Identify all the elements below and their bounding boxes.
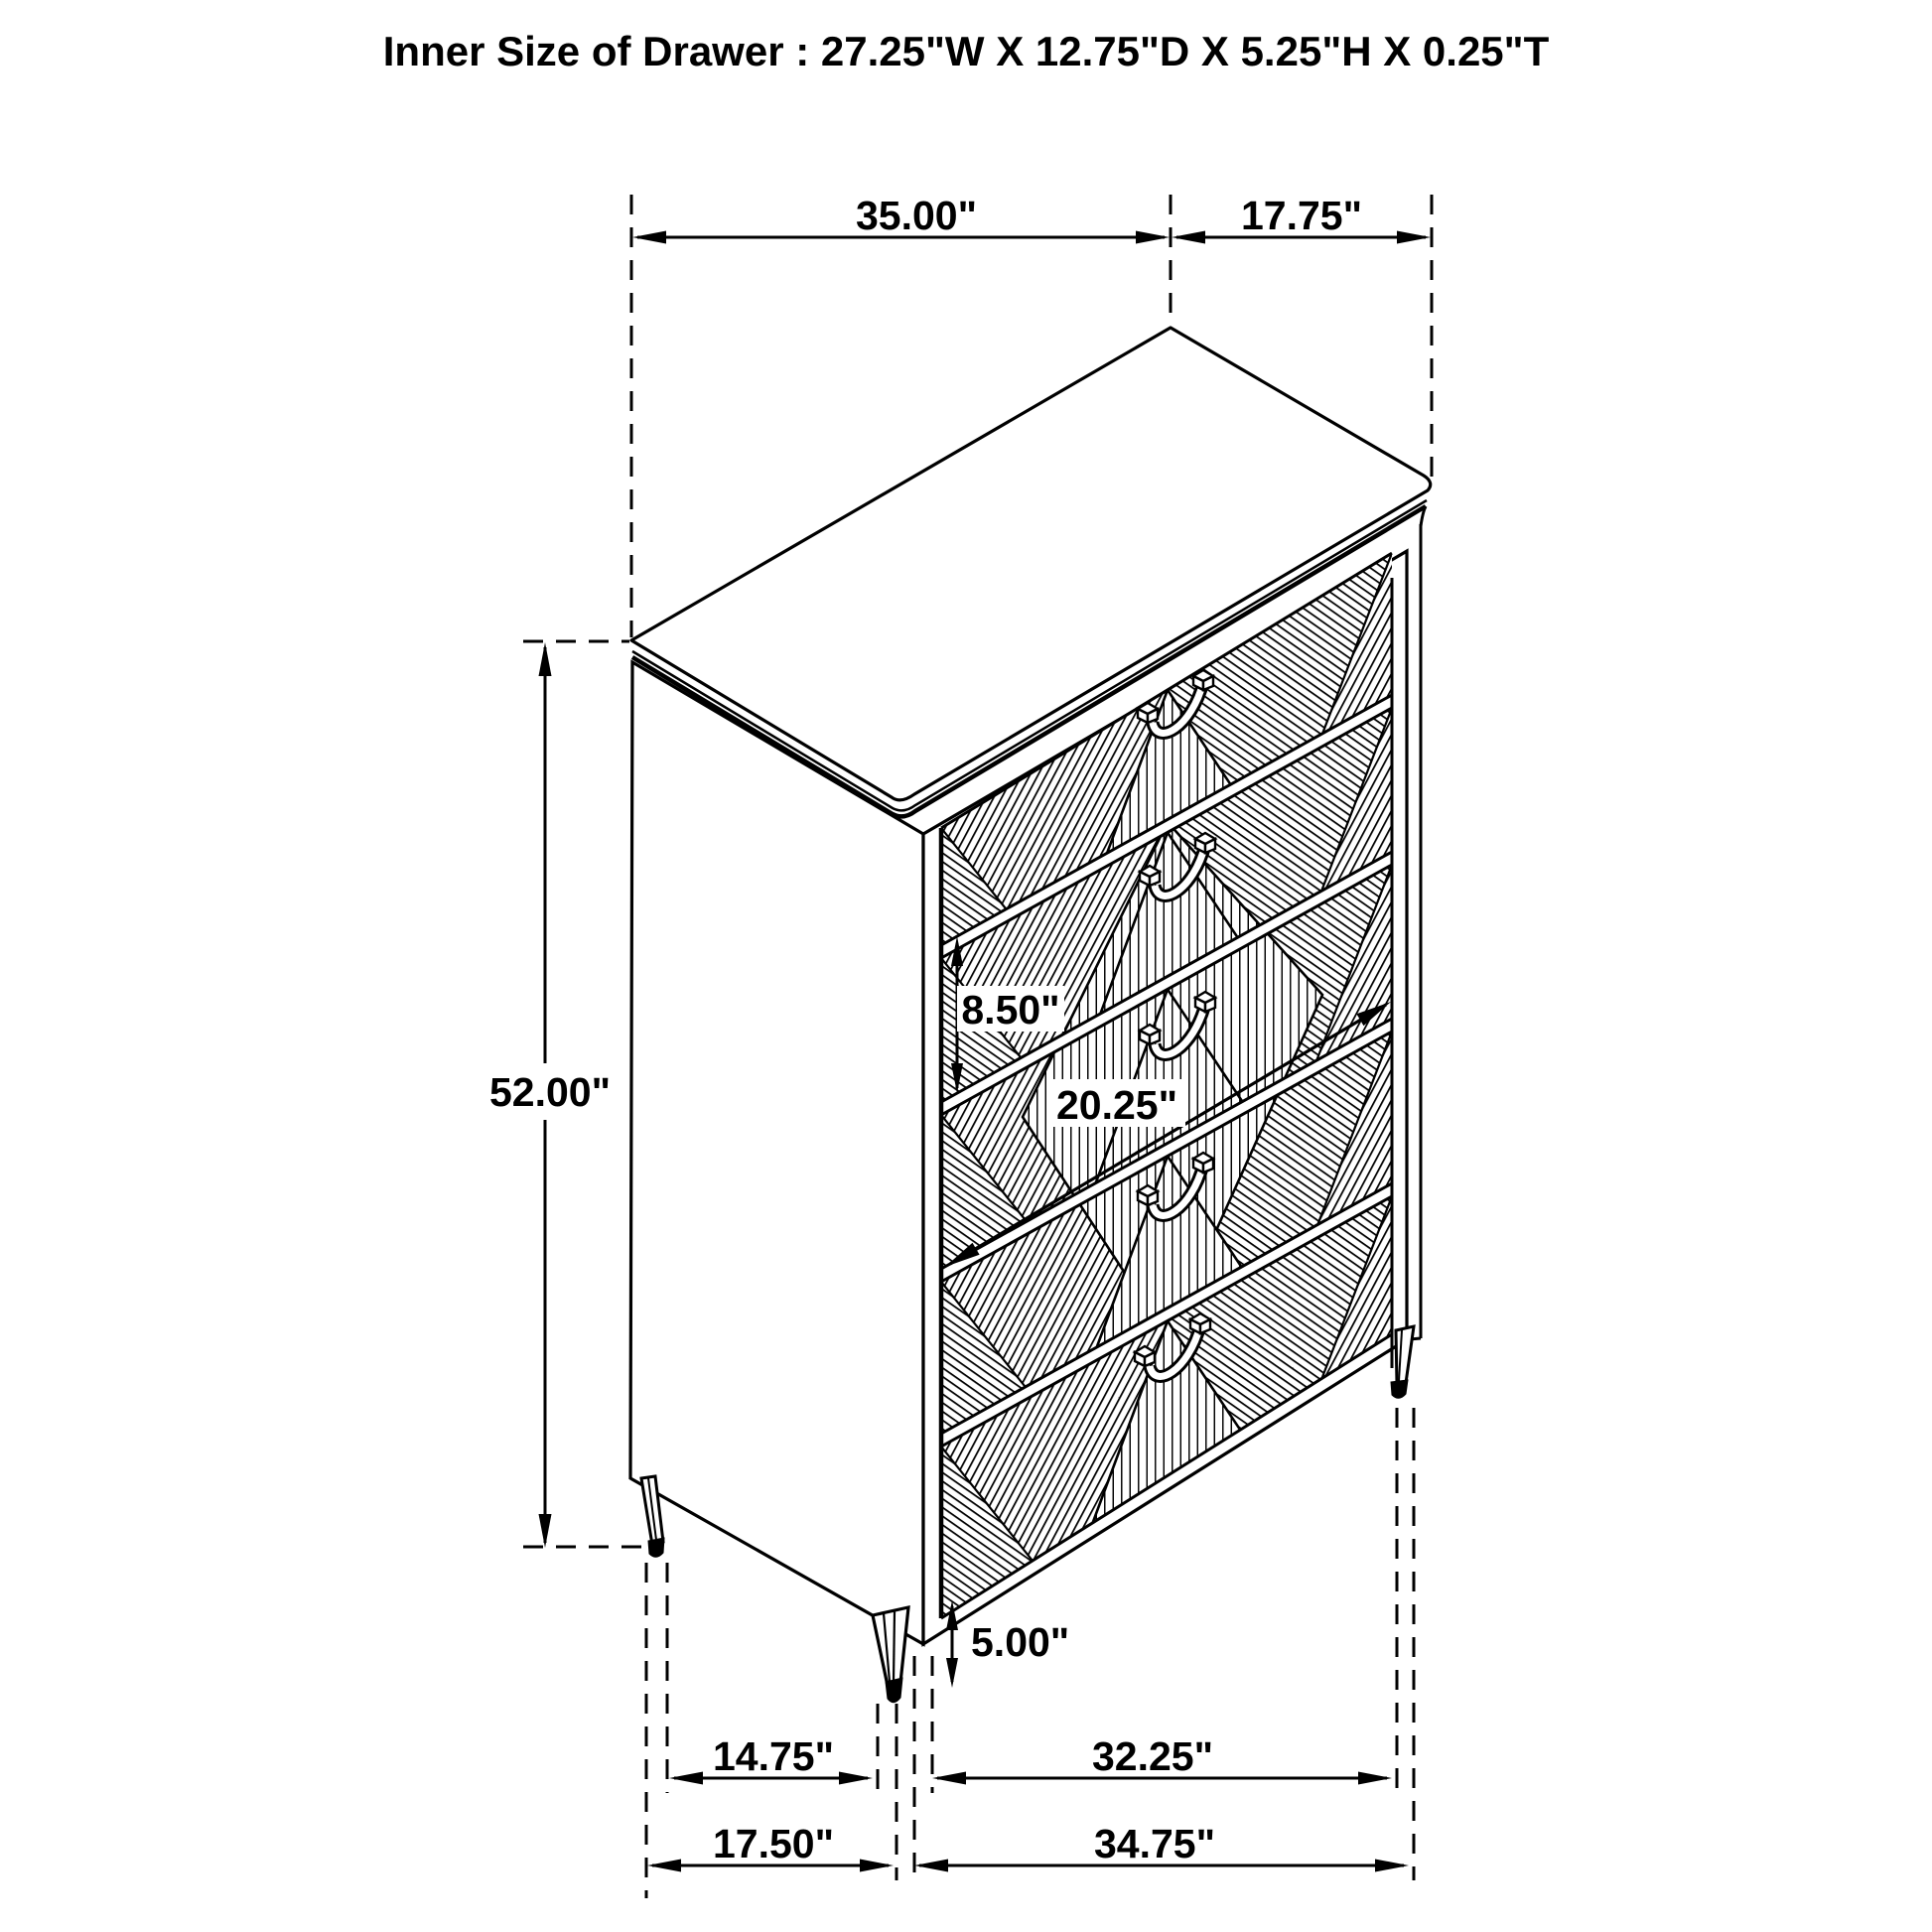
svg-text:8.50": 8.50": [961, 987, 1059, 1033]
svg-text:34.75": 34.75": [1094, 1821, 1215, 1866]
svg-text:35.00": 35.00": [856, 193, 977, 238]
svg-text:5.00": 5.00": [971, 1619, 1069, 1665]
svg-text:52.00": 52.00": [489, 1069, 611, 1115]
svg-text:17.50": 17.50": [713, 1821, 834, 1866]
svg-text:32.25": 32.25": [1092, 1733, 1213, 1779]
svg-text:20.25": 20.25": [1056, 1082, 1177, 1128]
svg-text:Inner Size of Drawer : 27.25"W: Inner Size of Drawer : 27.25"W X 12.75"D…: [383, 28, 1550, 74]
svg-text:17.75": 17.75": [1241, 193, 1362, 238]
svg-text:14.75": 14.75": [713, 1733, 834, 1779]
